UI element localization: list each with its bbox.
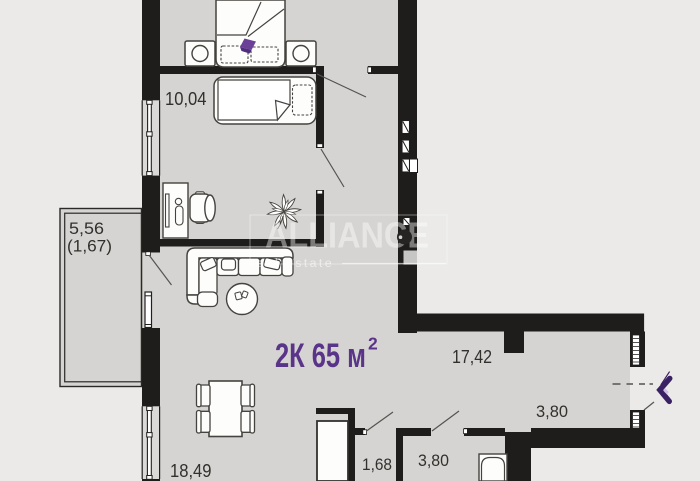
svg-text:10,04: 10,04 bbox=[165, 89, 207, 109]
svg-text:real estate: real estate bbox=[250, 258, 334, 270]
svg-text:1,68: 1,68 bbox=[362, 456, 392, 474]
svg-text:3,80: 3,80 bbox=[418, 452, 449, 470]
svg-text:17,42: 17,42 bbox=[452, 347, 492, 367]
svg-text:(1,67): (1,67) bbox=[67, 238, 112, 256]
svg-text:3,80: 3,80 bbox=[536, 402, 568, 421]
svg-text:5,56: 5,56 bbox=[69, 220, 104, 238]
svg-text:18,49: 18,49 bbox=[170, 461, 212, 481]
svg-text:2К 65 м: 2К 65 м bbox=[275, 337, 366, 375]
svg-text:2: 2 bbox=[368, 334, 378, 354]
